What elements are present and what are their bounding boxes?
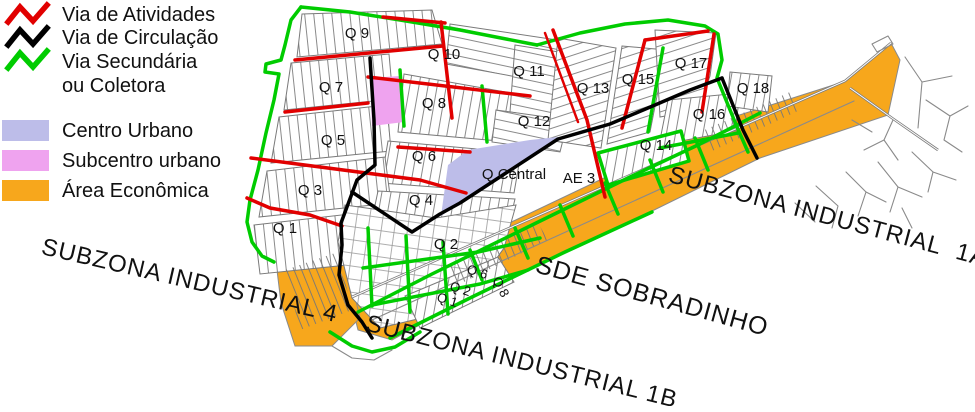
activity-road-legend-icon (8, 5, 47, 22)
net-6 (864, 140, 884, 150)
label-q-central: Q Central (482, 166, 546, 183)
label-q13: Q 13 (577, 80, 610, 97)
label-q9: Q 9 (345, 25, 369, 42)
legend-label-via-atividades: Via de Atividades (62, 4, 215, 26)
label-q5: Q 5 (321, 132, 345, 149)
zoning-map-page: Via de Atividades Via de Circulação Via … (0, 0, 975, 412)
label-q12: Q 12 (518, 113, 551, 130)
label-sde-sobradinho: SDE SOBRADINHO (533, 251, 772, 342)
label-q14: Q 14 (640, 137, 673, 154)
net-1 (905, 57, 922, 128)
net-10 (898, 187, 922, 197)
legend-label-area-economica: Área Econômica (62, 179, 210, 202)
label-q10: Q 10 (428, 46, 461, 63)
legend: Via de Atividades Via de Circulação Via … (2, 4, 221, 202)
legend-label-centro-urbano: Centro Urbano (62, 120, 193, 142)
net-12 (866, 192, 886, 202)
net-7 (912, 152, 933, 192)
net-2 (922, 76, 952, 82)
label-q15: Q 15 (622, 71, 655, 88)
legend-label-subcentro: Subcentro urbano (62, 150, 221, 172)
secondary-road-legend-icon (8, 51, 47, 68)
subcentro-swatch (2, 150, 49, 171)
centro-urbano-swatch (2, 120, 49, 141)
legend-label-via-secundaria: Via Secundária (62, 51, 198, 73)
label-q18: Q 18 (737, 80, 770, 97)
label-q1: Q 1 (273, 220, 297, 237)
label-q7: Q 7 (319, 79, 343, 96)
net-4 (944, 116, 962, 152)
circulation-road-legend-icon (8, 28, 47, 45)
label-ae3: AE 3 (563, 170, 596, 187)
label-q3: Q 3 (298, 182, 322, 199)
block-q9 (297, 10, 442, 57)
label-q4: Q 4 (409, 192, 433, 209)
label-subzona-industrial-1a: SUBZONA INDUSTRIAL 1A (666, 161, 975, 272)
net-3 (926, 100, 968, 116)
zoning-map-canvas: Via de Atividades Via de Circulação Via … (0, 0, 975, 412)
legend-label-ou-coletora: ou Coletora (62, 75, 166, 97)
net-9 (878, 162, 898, 212)
label-q16: Q 16 (693, 106, 726, 123)
net-8 (933, 172, 956, 180)
label-q2: Q 2 (434, 236, 458, 253)
label-q11: Q 11 (513, 63, 544, 80)
area-economica-swatch (2, 180, 49, 201)
label-q17: Q 17 (675, 55, 708, 72)
label-q8: Q 8 (422, 95, 446, 112)
label-q6: Q 6 (412, 148, 436, 165)
legend-label-via-circulacao: Via de Circulação (62, 27, 218, 49)
label-subzona-industrial-1b: SUBZONA INDUSTRIAL 1B (363, 310, 680, 412)
net-5 (884, 120, 898, 160)
